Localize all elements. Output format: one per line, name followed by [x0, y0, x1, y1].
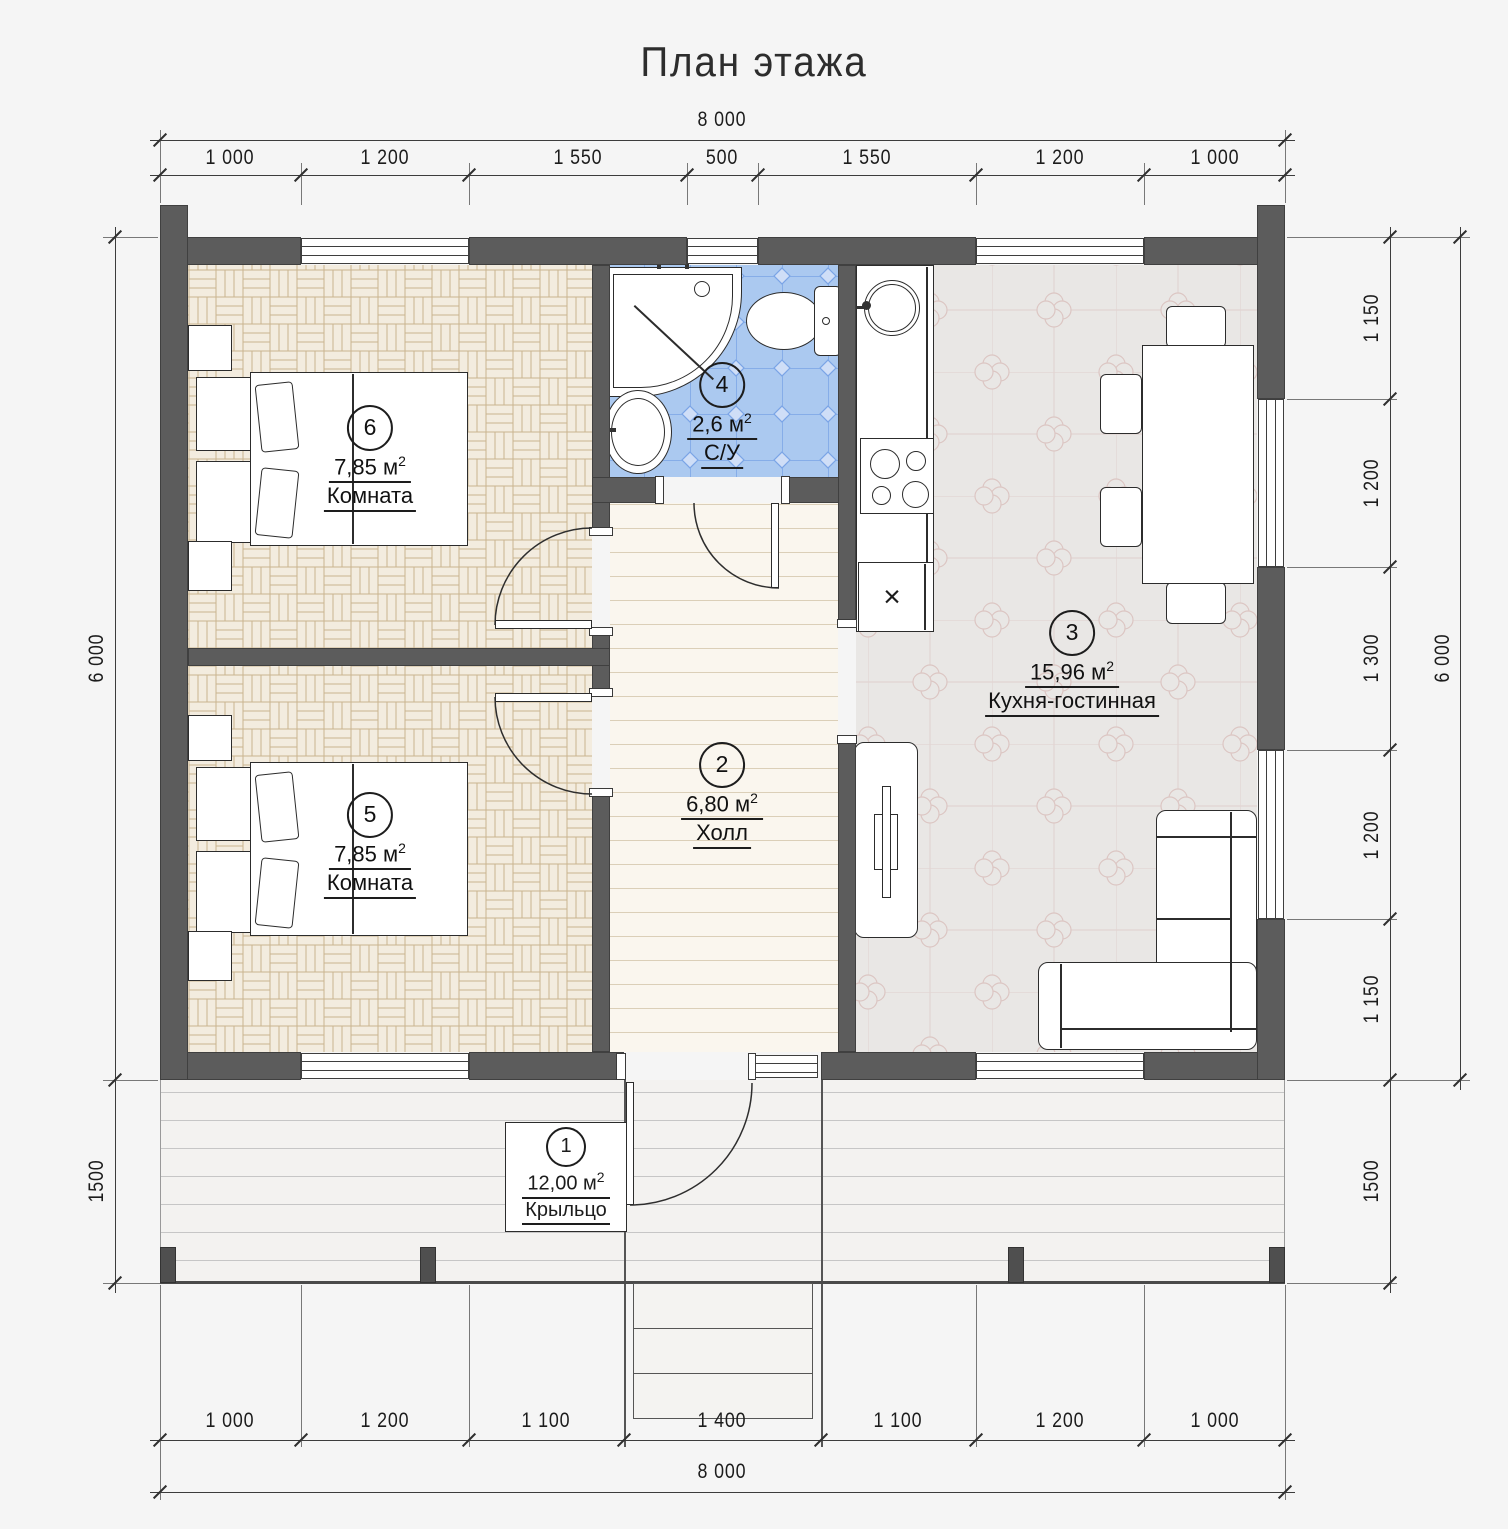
deck-post — [1269, 1247, 1285, 1283]
burner — [906, 451, 926, 471]
dim-label: 500 — [706, 146, 738, 170]
wall-segment — [592, 790, 610, 1052]
kitchen-faucet-knob — [862, 301, 871, 310]
sofa-seam — [1060, 1028, 1256, 1030]
dim-label: 1 000 — [206, 1409, 255, 1433]
deck-post — [420, 1247, 436, 1283]
area-superscript: 2 — [1106, 658, 1114, 674]
window — [1258, 399, 1284, 567]
burner — [870, 449, 900, 479]
dim-line-right-overall — [1460, 227, 1461, 1090]
dim-label: 1 150 — [1360, 975, 1384, 1024]
room-number: 3 — [1049, 610, 1095, 656]
room-area: 15,96 м2 — [1025, 658, 1119, 688]
room-label-hall: 2 6,80 м2 Холл — [681, 742, 763, 849]
room-label-porch: 1 12,00 м2 Крыльцо — [505, 1122, 627, 1232]
dim-label: 1 100 — [522, 1409, 571, 1433]
wall-segment — [160, 205, 188, 1080]
dim-label: 1 200 — [1036, 146, 1085, 170]
pillow — [255, 467, 300, 539]
window-sidelight — [755, 1055, 818, 1078]
pillow — [255, 857, 300, 929]
window — [976, 238, 1144, 264]
pillow — [255, 381, 300, 453]
dim-label: 1 550 — [843, 146, 892, 170]
bathroom-sink-basin — [611, 398, 665, 466]
nightstand — [188, 931, 232, 981]
wall-segment — [1257, 205, 1285, 399]
dim-label: 1 200 — [1360, 459, 1384, 508]
step — [633, 1328, 813, 1374]
cabinet — [196, 851, 256, 933]
room-name: Кухня-гостинная — [985, 688, 1159, 717]
extension-line — [469, 163, 470, 205]
dim-line-right-segments — [1390, 227, 1391, 1293]
window — [301, 238, 469, 264]
dim-label: 1 100 — [874, 1409, 923, 1433]
room-number: 6 — [347, 405, 393, 451]
cabinet — [196, 461, 256, 543]
dim-line-top-segments — [150, 175, 1295, 176]
dim-label: 1 400 — [698, 1409, 747, 1433]
tv-screen — [882, 786, 891, 898]
extension-line — [1144, 163, 1145, 205]
shower-head-icon — [694, 281, 710, 297]
extension-line — [1287, 1080, 1470, 1081]
extension-line — [1287, 567, 1397, 568]
dim-label: 1 200 — [1360, 811, 1384, 860]
extension-line — [301, 1285, 302, 1447]
dining-table — [1142, 345, 1254, 584]
burner — [872, 486, 891, 505]
wall-segment — [1257, 919, 1285, 1080]
extension-line — [1287, 399, 1397, 400]
extension-line — [758, 163, 759, 205]
door-jamb — [616, 1053, 626, 1080]
dim-label: 1 000 — [1191, 1409, 1240, 1433]
room-name: С/У — [701, 440, 743, 469]
room-area: 2,6 м2 — [687, 410, 757, 440]
dim-label-top-overall: 8 000 — [698, 108, 747, 132]
room-number: 4 — [699, 362, 745, 408]
sofa-seam — [1157, 836, 1256, 838]
extension-line — [1285, 1285, 1286, 1500]
sofa-seam — [1230, 812, 1232, 1032]
cabinet — [196, 377, 256, 451]
cabinet-edge-line — [924, 564, 926, 630]
wall-segment — [469, 237, 687, 265]
dim-label-right-overall: 6 000 — [1431, 634, 1455, 683]
extension-line — [301, 163, 302, 205]
dim-label: 1 000 — [206, 146, 255, 170]
dim-line-top-overall — [150, 140, 1295, 141]
door-leaf-bedroom-5 — [495, 693, 592, 702]
dim-label-left-overall: 6 000 — [85, 634, 109, 683]
room-name: Комната — [324, 483, 416, 512]
door-jamb — [589, 688, 613, 697]
dim-label: 1 200 — [1036, 1409, 1085, 1433]
dim-line-bottom-segments — [150, 1440, 1295, 1441]
sofa-seam — [1157, 918, 1231, 920]
dim-label-left-porch: 1500 — [85, 1159, 109, 1202]
toilet-button — [822, 317, 830, 325]
wall-segment — [838, 265, 856, 628]
extension-line — [687, 163, 688, 205]
door-leaf-bedroom-6 — [495, 620, 592, 629]
chair — [1166, 306, 1226, 348]
dim-line-bottom-overall — [150, 1492, 1295, 1493]
room-area: 6,80 м2 — [681, 790, 763, 820]
extension-line — [1287, 237, 1470, 238]
room-label-bedroom-6: 6 7,85 м2 Комната — [324, 405, 416, 512]
nightstand — [188, 715, 232, 761]
door-leaf-entrance — [626, 1082, 634, 1205]
kitchen-sink-basin — [868, 284, 916, 332]
deck-post — [160, 1247, 176, 1283]
wall-segment — [1257, 567, 1285, 750]
extension-line — [1144, 1285, 1145, 1447]
area-superscript: 2 — [398, 453, 406, 469]
step — [633, 1283, 813, 1329]
dim-label-right-porch: 1500 — [1360, 1159, 1384, 1202]
door-leaf-bathroom — [771, 503, 779, 588]
extension-line — [1287, 919, 1397, 920]
room-label-bedroom-5: 5 7,85 м2 Комната — [324, 792, 416, 899]
extension-line — [160, 1285, 161, 1500]
area-superscript: 2 — [750, 790, 758, 806]
toilet-bowl — [746, 292, 822, 350]
dim-line-left — [115, 227, 116, 1293]
room-area: 7,85 м2 — [329, 453, 411, 483]
window — [1258, 750, 1284, 919]
chair — [1100, 487, 1142, 547]
room-name: Комната — [324, 870, 416, 899]
window — [687, 238, 758, 264]
room-number: 5 — [347, 792, 393, 838]
window — [301, 1053, 469, 1079]
wall-segment — [188, 648, 610, 666]
extension-line — [1287, 750, 1397, 751]
dim-label: 1 150 — [1360, 294, 1384, 343]
area-superscript: 2 — [597, 1169, 605, 1185]
walkway-line — [821, 1080, 823, 1447]
extension-line — [976, 163, 977, 205]
room-label-bathroom: 4 2,6 м2 С/У — [687, 362, 757, 469]
sofa-section-horizontal — [1038, 962, 1257, 1050]
room-name: Крыльцо — [522, 1199, 610, 1225]
dim-label: 1 200 — [361, 146, 410, 170]
floor-plan-canvas: План этажа — [0, 0, 1508, 1529]
cabinet — [196, 767, 256, 841]
extension-line — [1287, 1283, 1397, 1284]
sofa-armrest-seam — [1060, 964, 1062, 1048]
door-jamb — [589, 627, 613, 636]
nightstand — [188, 325, 232, 371]
extension-line — [469, 1285, 470, 1447]
area-superscript: 2 — [744, 410, 752, 426]
dim-label: 1 200 — [361, 1409, 410, 1433]
door-jamb — [837, 619, 857, 628]
room-number: 1 — [546, 1127, 586, 1167]
wall-segment — [838, 736, 856, 1052]
nightstand — [188, 541, 232, 591]
dim-label-bottom-overall: 8 000 — [698, 1460, 747, 1484]
room-area: 7,85 м2 — [329, 840, 411, 870]
room-name: Холл — [693, 820, 751, 849]
chair — [1100, 374, 1142, 434]
area-superscript: 2 — [398, 840, 406, 856]
door-jamb — [837, 735, 857, 744]
door-jamb — [781, 476, 790, 504]
door-jamb — [589, 788, 613, 797]
burner — [902, 481, 929, 508]
room-label-kitchen: 3 15,96 м2 Кухня-гостинная — [985, 610, 1159, 717]
door-jamb — [655, 476, 664, 504]
deck-post — [1008, 1247, 1024, 1283]
wall-segment — [758, 237, 976, 265]
door-jamb — [589, 527, 613, 536]
wall-segment — [821, 1052, 976, 1080]
dim-label: 1 000 — [1191, 146, 1240, 170]
wall-segment — [469, 1052, 624, 1080]
room-number: 2 — [699, 742, 745, 788]
extension-line — [976, 1285, 977, 1447]
pillow — [255, 771, 300, 843]
chair — [1166, 582, 1226, 624]
cabinet-x-mark: × — [883, 580, 901, 614]
wall-segment — [592, 477, 662, 503]
dim-label: 1 550 — [554, 146, 603, 170]
porch-deck — [160, 1080, 1285, 1283]
window — [976, 1053, 1144, 1079]
room-area: 12,00 м2 — [522, 1169, 609, 1199]
dim-label: 1 300 — [1360, 634, 1384, 683]
